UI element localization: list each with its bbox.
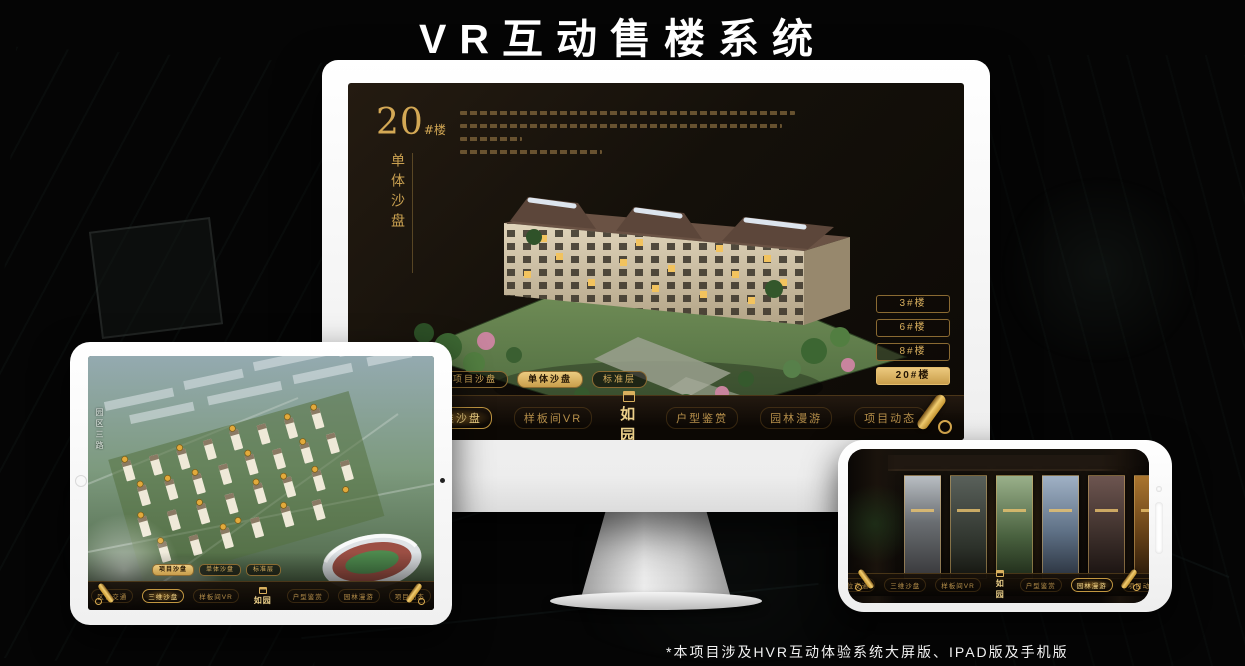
building-title: 20#楼 bbox=[376, 105, 446, 141]
view-tabs: 项目沙盘 单体沙盘 标准层 bbox=[442, 371, 647, 388]
background-certificate-frame bbox=[89, 217, 223, 339]
nav-item-unit-gallery[interactable]: 户型鉴赏 bbox=[287, 589, 329, 603]
monitor-stand-base bbox=[550, 592, 762, 610]
nav-item-3d-sandbox[interactable]: 三维沙盘 bbox=[884, 578, 926, 592]
description-line bbox=[460, 111, 795, 115]
floor-button-20[interactable]: 20#楼 bbox=[876, 367, 950, 385]
nav-item-garden-roam[interactable]: 园林漫游 bbox=[760, 407, 832, 429]
brand-logo: 如园 bbox=[254, 587, 272, 606]
scene-gallery bbox=[904, 475, 1149, 579]
scroll-ornament-icon[interactable] bbox=[910, 394, 956, 436]
floor-button-6[interactable]: 6#楼 bbox=[876, 319, 950, 337]
nav-item-unit-gallery[interactable]: 户型鉴赏 bbox=[1020, 578, 1062, 592]
interior-beam bbox=[888, 455, 1118, 471]
phone-camera-icon bbox=[1156, 486, 1162, 492]
brand-logo: 如园 bbox=[620, 391, 638, 440]
nav-item-unit-gallery[interactable]: 户型鉴赏 bbox=[666, 407, 738, 429]
building-number-suffix: #楼 bbox=[424, 123, 446, 137]
brand-logo-text: 如园 bbox=[620, 403, 638, 440]
brand-logo: 如园 bbox=[996, 570, 1005, 600]
floor-button-8[interactable]: 8#楼 bbox=[876, 343, 950, 361]
nav-item-garden-roam[interactable]: 园林漫游 bbox=[1071, 578, 1113, 592]
nav-item-model-room-vr[interactable]: 样板间VR bbox=[514, 407, 592, 429]
scroll-ornament-icon[interactable] bbox=[94, 582, 116, 606]
scroll-ornament-icon[interactable] bbox=[854, 568, 876, 592]
seal-icon bbox=[996, 570, 1004, 577]
nav-item-3d-sandbox[interactable]: 三维沙盘 bbox=[142, 589, 184, 603]
building-number: 20 bbox=[376, 102, 424, 143]
scroll-ornament-icon[interactable] bbox=[1119, 568, 1141, 592]
phone-screen: 区位交通 三维沙盘 样板间VR 如园 户型鉴赏 园林漫游 项目动态 bbox=[848, 449, 1149, 603]
gallery-panel[interactable] bbox=[1042, 475, 1079, 579]
gallery-panel[interactable] bbox=[1134, 475, 1149, 579]
tab-standard-floor[interactable]: 标准层 bbox=[246, 564, 281, 576]
tab-standard-floor[interactable]: 标准层 bbox=[592, 371, 647, 388]
gallery-panel[interactable] bbox=[904, 475, 941, 579]
phone-bottom-nav: 区位交通 三维沙盘 样板间VR 如园 户型鉴赏 园林漫游 项目动态 bbox=[848, 573, 1149, 596]
tab-project-sandbox[interactable]: 项目沙盘 bbox=[152, 564, 194, 576]
floor-selector: 3#楼 6#楼 8#楼 20#楼 bbox=[876, 295, 950, 385]
scroll-ornament-icon[interactable] bbox=[404, 582, 426, 606]
floor-button-3[interactable]: 3#楼 bbox=[876, 295, 950, 313]
phone-device: 区位交通 三维沙盘 样板间VR 如园 户型鉴赏 园林漫游 项目动态 bbox=[838, 440, 1172, 612]
gallery-panel[interactable] bbox=[1088, 475, 1125, 579]
description-line bbox=[460, 124, 782, 128]
plant-silhouette bbox=[848, 479, 910, 569]
nav-item-garden-roam[interactable]: 园林漫游 bbox=[338, 589, 380, 603]
ipad-screen: 园区三路 项目沙盘 单体沙盘 标准层 区位交通 三维沙盘 样板间VR 如园 户型… bbox=[88, 356, 434, 610]
brand-logo-text: 如园 bbox=[254, 595, 272, 606]
tab-single-building-sandbox[interactable]: 单体沙盘 bbox=[517, 371, 583, 388]
nav-item-model-room-vr[interactable]: 样板间VR bbox=[935, 578, 981, 592]
nav-item-model-room-vr[interactable]: 样板间VR bbox=[193, 589, 239, 603]
ipad-home-ring bbox=[75, 475, 87, 487]
monitor-stand-neck bbox=[581, 508, 731, 598]
seal-icon bbox=[623, 391, 635, 402]
page-title: VR互动售楼系统 bbox=[0, 5, 1245, 65]
marketing-poster: VR互动售楼系统 20#楼 单体沙盘 bbox=[0, 0, 1245, 666]
road-label: 园区三路 bbox=[94, 408, 105, 452]
ipad-camera-icon bbox=[440, 478, 445, 483]
ipad-bottom-nav: 区位交通 三维沙盘 样板间VR 如园 户型鉴赏 园林漫游 项目动态 bbox=[88, 581, 434, 610]
gallery-panel[interactable] bbox=[950, 475, 987, 579]
background-blob bbox=[990, 180, 1210, 360]
footnote-text: *本项目涉及HVR互动体验系统大屏版、IPAD版及手机版 bbox=[666, 642, 1069, 662]
seal-icon bbox=[259, 587, 267, 594]
ipad-view-tabs: 项目沙盘 单体沙盘 标准层 bbox=[152, 564, 281, 576]
phone-notch bbox=[1155, 502, 1163, 554]
gallery-panel[interactable] bbox=[996, 475, 1033, 579]
brand-logo-text: 如园 bbox=[996, 578, 1005, 600]
tab-single-building-sandbox[interactable]: 单体沙盘 bbox=[199, 564, 241, 576]
ipad-device: 园区三路 项目沙盘 单体沙盘 标准层 区位交通 三维沙盘 样板间VR 如园 户型… bbox=[70, 342, 452, 625]
